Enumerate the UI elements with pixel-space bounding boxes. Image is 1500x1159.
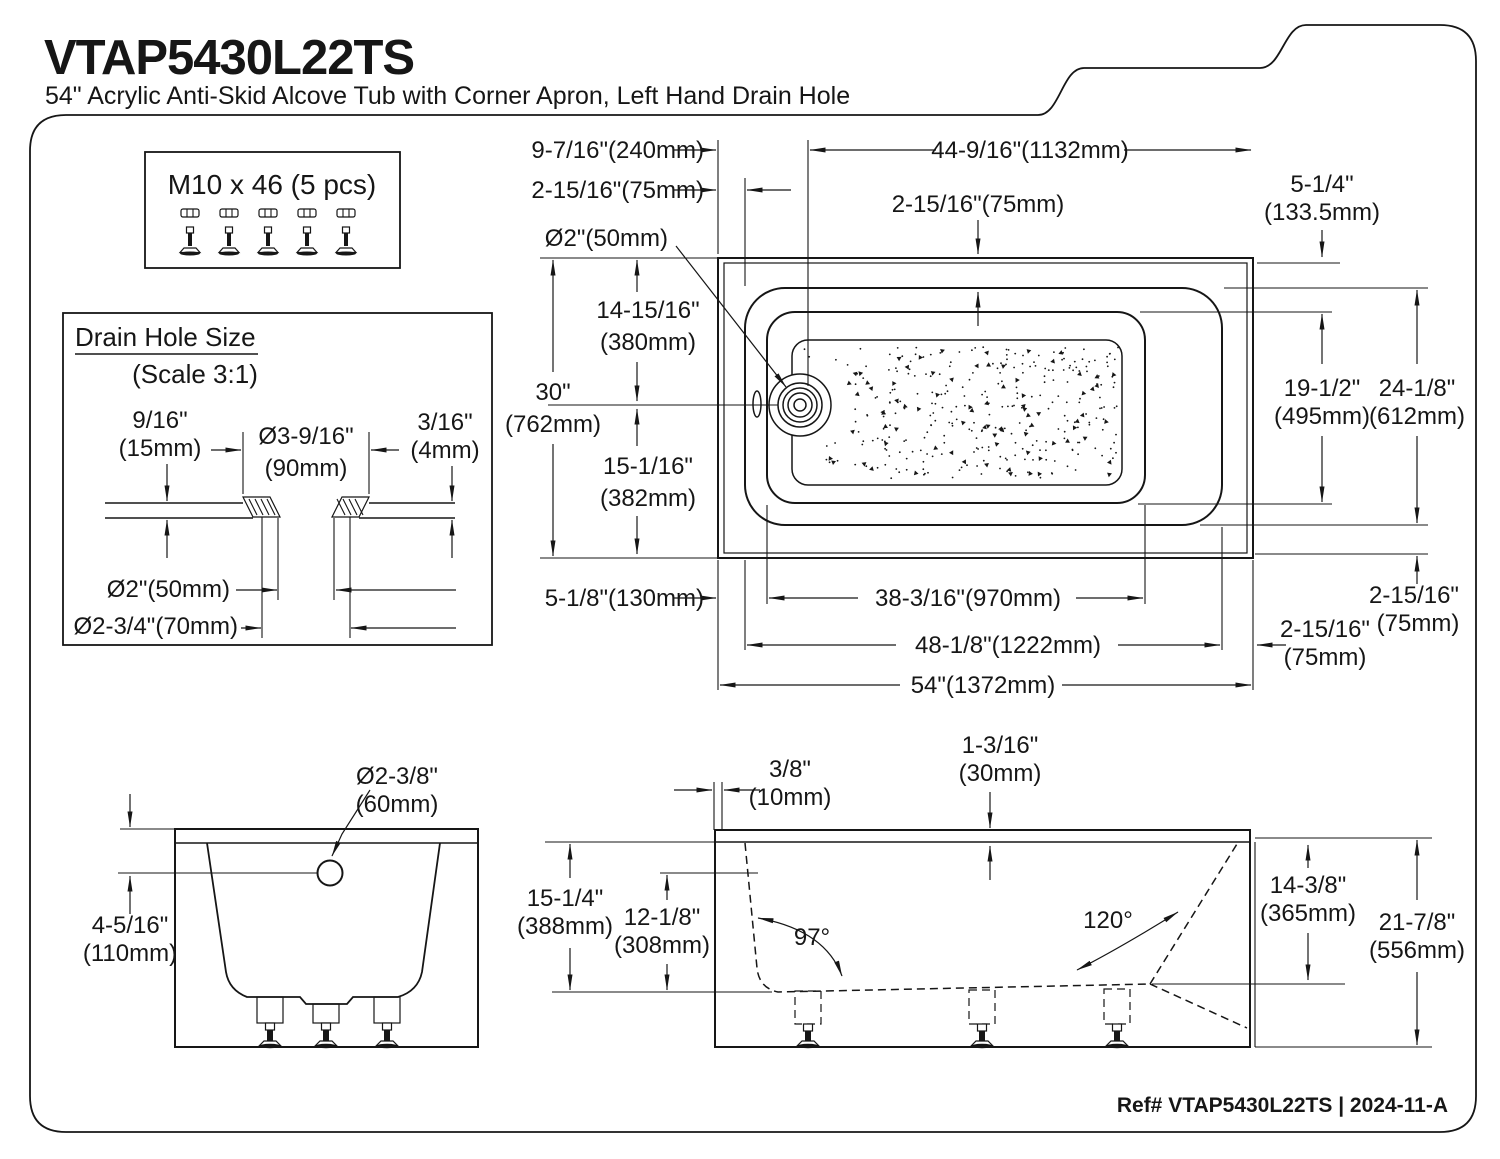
dim-drain-to-right: 44-9/16"(1132mm): [810, 137, 1251, 164]
dim-label: 5-1/4": [1290, 171, 1353, 198]
dim-hole-id: Ø2"(50mm): [107, 576, 456, 603]
dim-label: (133.5mm): [1264, 199, 1380, 226]
dim-label: Ø2-3/8": [356, 763, 438, 790]
anti-skid-texture: [804, 346, 1119, 479]
dim-label: (556mm): [1369, 937, 1465, 964]
dim-wall-angle: 97°: [758, 918, 842, 976]
dim-label: 19-1/2": [1284, 375, 1361, 402]
dim-drain-cl-bottom: 15-1/16" (382mm): [600, 409, 696, 554]
overflow-hole-icon: [318, 861, 343, 886]
dim-label: 15-1/16": [603, 453, 693, 480]
dim-skirt-left: 5-1/8"(130mm): [545, 585, 716, 612]
page-title: VTAP5430L22TS: [44, 31, 414, 85]
dim-label: 14-15/16": [596, 297, 699, 324]
dim-label: (495mm): [1274, 403, 1370, 430]
leveling-feet-hidden: [795, 989, 1130, 1048]
dim-slope-angle: 120°: [1077, 907, 1178, 970]
drain-detail-scale: (Scale 3:1): [132, 359, 258, 389]
dim-label: 1-3/16": [962, 732, 1039, 759]
overflow-slot-icon: [753, 391, 761, 417]
page-subtitle: 54" Acrylic Anti-Skid Alcove Tub with Co…: [45, 82, 850, 110]
dim-water-depth: 12-1/8" (308mm): [614, 875, 710, 990]
dim-label: 120°: [1083, 907, 1133, 934]
dim-label: Ø3-9/16": [258, 423, 353, 450]
dim-label: 15-1/4": [527, 885, 604, 912]
drain-detail: Drain Hole Size (Scale 3:1) 9/16" (15mm): [63, 313, 492, 645]
dim-rim-width: 24-1/8" (612mm): [1369, 290, 1465, 523]
header: VTAP5430L22TS 54" Acrylic Anti-Skid Alco…: [44, 31, 850, 110]
dim-label: 48-1/8"(1222mm): [915, 632, 1101, 659]
dim-label: 44-9/16"(1132mm): [931, 137, 1129, 164]
dim-rim-length: 48-1/8"(1222mm): [747, 632, 1220, 659]
dim-label: (15mm): [119, 435, 202, 462]
dim-label: (75mm): [1377, 610, 1460, 637]
dim-label: 9/16": [132, 407, 187, 434]
dim-label: 14-3/8": [1270, 872, 1347, 899]
dim-rim-bottom: 2-15/16" (75mm): [1257, 616, 1370, 671]
dim-label: 2-15/16"(75mm): [892, 191, 1065, 218]
dim-label: 97°: [794, 924, 830, 951]
dim-apron-overhang-left: 2-15/16"(75mm): [531, 177, 791, 204]
dim-label: 3/8": [769, 756, 811, 783]
dim-rim-right: 2-15/16" (75mm): [1369, 556, 1459, 637]
dim-corner-ext: 5-1/4" (133.5mm): [1264, 171, 1380, 257]
dim-label: (382mm): [600, 485, 696, 512]
dim-overflow-dia: Ø2-3/8" (60mm): [332, 763, 438, 856]
dim-label: (4mm): [410, 437, 479, 464]
hardware-box: M10 x 46 (5 pcs): [145, 152, 400, 268]
dim-label: 21-7/8": [1379, 909, 1456, 936]
drain-detail-title: Drain Hole Size: [75, 322, 256, 352]
dim-label: (388mm): [517, 913, 613, 940]
dim-label: Ø2-3/4"(70mm): [73, 613, 238, 640]
dim-overall-height: 21-7/8" (556mm): [1369, 840, 1465, 1045]
dim-label: (380mm): [600, 329, 696, 356]
dim-label: (612mm): [1369, 403, 1465, 430]
anti-skid-area: [792, 340, 1122, 485]
dim-label: (60mm): [356, 791, 439, 818]
dim-label: (10mm): [749, 784, 832, 811]
spec-sheet: VTAP5430L22TS 54" Acrylic Anti-Skid Alco…: [0, 0, 1500, 1159]
dim-label: 2-15/16": [1280, 616, 1370, 643]
dim-label: Ø2"(50mm): [545, 225, 668, 252]
dim-drain-cl-top: 14-15/16" (380mm): [596, 260, 699, 401]
dim-inner-height: 14-3/8" (365mm): [1260, 845, 1356, 980]
top-view: 9-7/16"(240mm) 44-9/16"(1132mm) 2-15/16"…: [505, 137, 1465, 699]
dim-basin-width: 19-1/2" (495mm): [1274, 314, 1370, 502]
dim-label: 24-1/8": [1379, 375, 1456, 402]
dim-label: 12-1/8": [624, 904, 701, 931]
dim-lip: 3/8" (10mm): [674, 756, 831, 811]
end-view: 4-5/16" (110mm) Ø2-3/8" (60mm): [83, 763, 478, 1048]
dim-width-30: 30" (762mm): [505, 260, 601, 556]
dim-label: 30": [535, 379, 570, 406]
dim-label: 38-3/16"(970mm): [875, 585, 1061, 612]
dim-flange-opening: Ø2-3/4"(70mm): [73, 613, 456, 640]
dim-label: (365mm): [1260, 900, 1356, 927]
dim-drain-offset: 9-7/16"(240mm): [531, 137, 716, 164]
footer-ref: Ref# VTAP5430L22TS | 2024-11-A: [1117, 1094, 1448, 1117]
dim-label: Ø2"(50mm): [107, 576, 230, 603]
side-view: 3/8" (10mm) 1-3/16" (30mm) 15-1/4" (388m…: [517, 732, 1465, 1048]
dim-flange-height: 9/16" (15mm): [119, 407, 202, 558]
dim-label: (90mm): [265, 455, 348, 482]
dim-label: 3/16": [417, 409, 472, 436]
dim-label: (308mm): [614, 932, 710, 959]
dim-overall-length: 54"(1372mm): [720, 672, 1251, 699]
dim-label: 54"(1372mm): [911, 672, 1056, 699]
spec-drawing: VTAP5430L22TS 54" Acrylic Anti-Skid Alco…: [0, 0, 1500, 1159]
dim-flange-od: Ø3-9/16" (90mm): [211, 423, 399, 482]
dim-label: (110mm): [83, 940, 177, 967]
dim-overflow-drop: 4-5/16" (110mm): [83, 794, 177, 967]
dim-basin-length: 38-3/16"(970mm): [769, 585, 1143, 612]
hardware-label: M10 x 46 (5 pcs): [168, 169, 377, 200]
dim-label: 4-5/16": [92, 912, 169, 939]
dim-deck-thickness: 1-3/16" (30mm): [959, 732, 1042, 880]
dim-label: (30mm): [959, 760, 1042, 787]
dim-depth: 15-1/4" (388mm): [517, 844, 613, 990]
bolt-icons: [180, 209, 356, 256]
dim-plate-thickness: 3/16" (4mm): [410, 409, 479, 558]
dim-label: (75mm): [1284, 644, 1367, 671]
tub-section-outline: [207, 843, 440, 1004]
dim-label: 2-15/16": [1369, 582, 1459, 609]
dim-label: (762mm): [505, 411, 601, 438]
